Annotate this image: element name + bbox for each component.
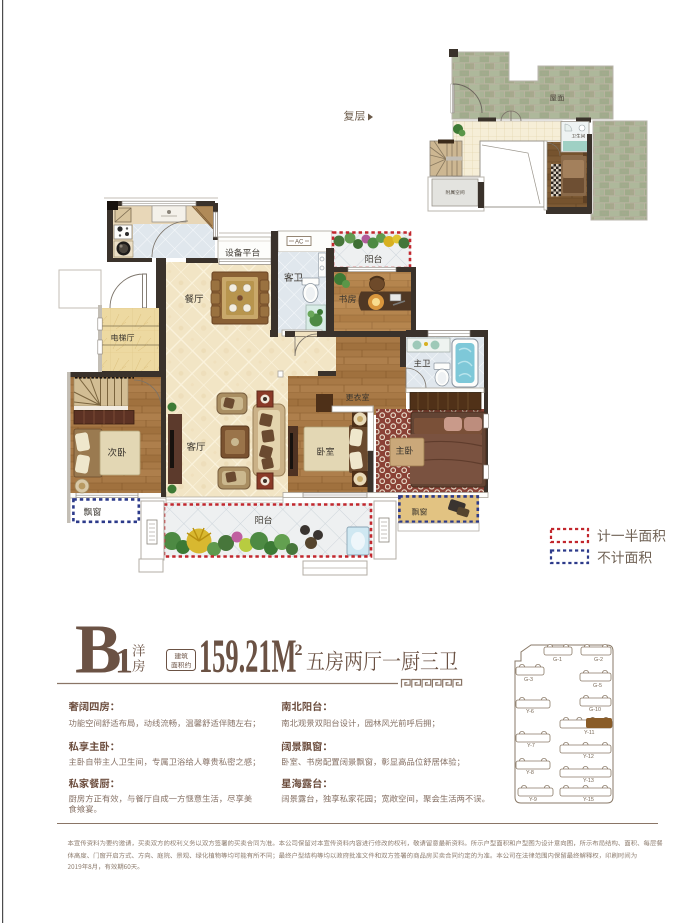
svg-text:G-10: G-10 [589, 707, 601, 713]
svg-text:Y-12: Y-12 [583, 754, 594, 760]
svg-text:Y-11: Y-11 [584, 730, 595, 736]
svg-text:159.21M: 159.21M [199, 630, 296, 683]
svg-text:G-5: G-5 [593, 683, 602, 689]
svg-text:1: 1 [115, 641, 133, 681]
svg-text:AC: AC [295, 239, 304, 245]
svg-text:G-1: G-1 [553, 657, 562, 663]
svg-text:G-2: G-2 [594, 657, 603, 663]
svg-text:Y-9: Y-9 [529, 797, 537, 803]
svg-text:Y-7: Y-7 [527, 743, 535, 749]
svg-text:Y-8: Y-8 [526, 770, 534, 776]
svg-text:Y-13: Y-13 [583, 778, 594, 784]
svg-text:Y-6: Y-6 [526, 709, 534, 715]
svg-text:2: 2 [295, 642, 303, 659]
svg-text:G-3: G-3 [524, 677, 533, 683]
svg-text:Y-15: Y-15 [583, 797, 594, 803]
